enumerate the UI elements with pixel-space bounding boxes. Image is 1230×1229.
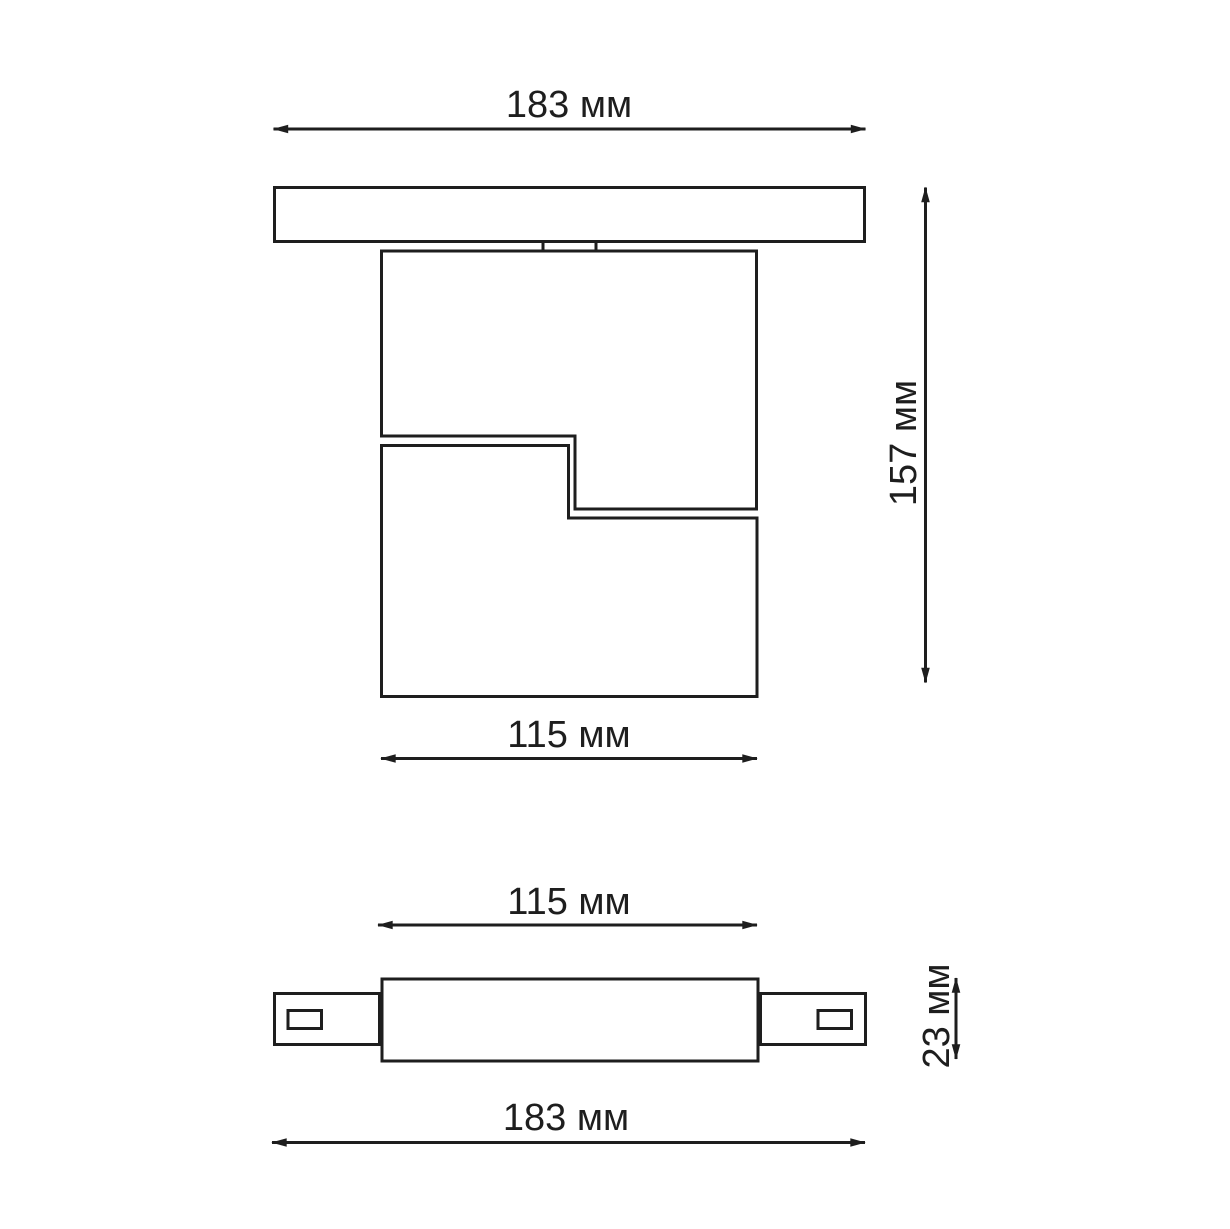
svg-text:183 мм: 183 мм [506,84,632,126]
svg-text:23 мм: 23 мм [916,963,958,1068]
svg-text:157 мм: 157 мм [883,380,925,506]
svg-text:183 мм: 183 мм [503,1097,629,1139]
svg-text:115 мм: 115 мм [507,881,630,923]
svg-text:115 мм: 115 мм [507,714,630,756]
